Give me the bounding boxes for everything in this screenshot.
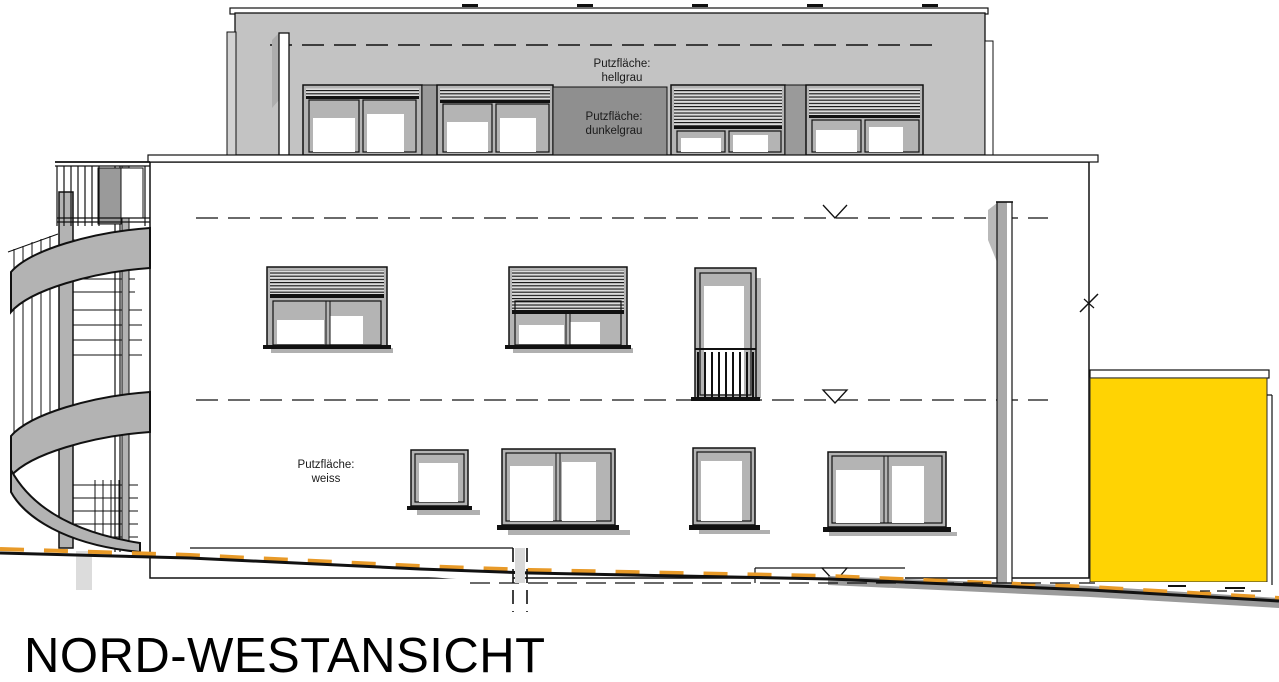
elevation-drawing: Putzfläche: hellgrau Putzfläche: dunkelg… bbox=[0, 0, 1279, 682]
foundation-dashed-lines bbox=[513, 548, 527, 612]
penthouse-window-2 bbox=[437, 85, 553, 155]
window-upper-left bbox=[263, 267, 393, 353]
penthouse-right-step bbox=[985, 41, 993, 155]
penthouse: Putzfläche: hellgrau Putzfläche: dunkelg… bbox=[227, 4, 993, 155]
penthouse-window-1 bbox=[303, 85, 422, 155]
penthouse-window-3 bbox=[671, 85, 785, 155]
staircase-treads bbox=[66, 240, 142, 537]
penthouse-mullion-pillar-2 bbox=[785, 85, 806, 155]
yellow-annex bbox=[1090, 370, 1272, 591]
penthouse-window-4 bbox=[806, 85, 923, 155]
penthouse-left-step bbox=[227, 32, 236, 155]
window-ground-4 bbox=[823, 452, 957, 536]
label-hellgrau-line2: hellgrau bbox=[602, 72, 643, 84]
plaster-area-weiss bbox=[150, 162, 1089, 578]
label-weiss-line2: weiss bbox=[311, 473, 341, 485]
roof-dash-marks bbox=[462, 4, 938, 7]
drawing-title: NORD-WESTANSICHT bbox=[24, 629, 546, 682]
spiral-staircase bbox=[8, 162, 150, 552]
label-dunkelgrau-line2: dunkelgrau bbox=[586, 125, 643, 137]
label-weiss-line1: Putzfläche: bbox=[298, 459, 355, 471]
annex-yellow-wall bbox=[1090, 378, 1267, 582]
balcony-door bbox=[691, 268, 761, 401]
window-ground-2 bbox=[497, 449, 630, 535]
penthouse-mullion-pillar-1 bbox=[422, 85, 437, 155]
staircase-support-post bbox=[122, 166, 129, 548]
label-dunkelgrau-line1: Putzfläche: bbox=[586, 111, 643, 123]
main-facade: Putzfläche: weiss bbox=[148, 155, 1098, 583]
elevation-svg: Putzfläche: hellgrau Putzfläche: dunkelg… bbox=[0, 0, 1279, 682]
annex-roof-band bbox=[1090, 370, 1269, 378]
window-upper-middle bbox=[505, 267, 633, 353]
parapet-coping bbox=[148, 155, 1098, 162]
label-hellgrau-line1: Putzfläche: bbox=[594, 58, 651, 70]
balcony-railing bbox=[695, 349, 756, 397]
